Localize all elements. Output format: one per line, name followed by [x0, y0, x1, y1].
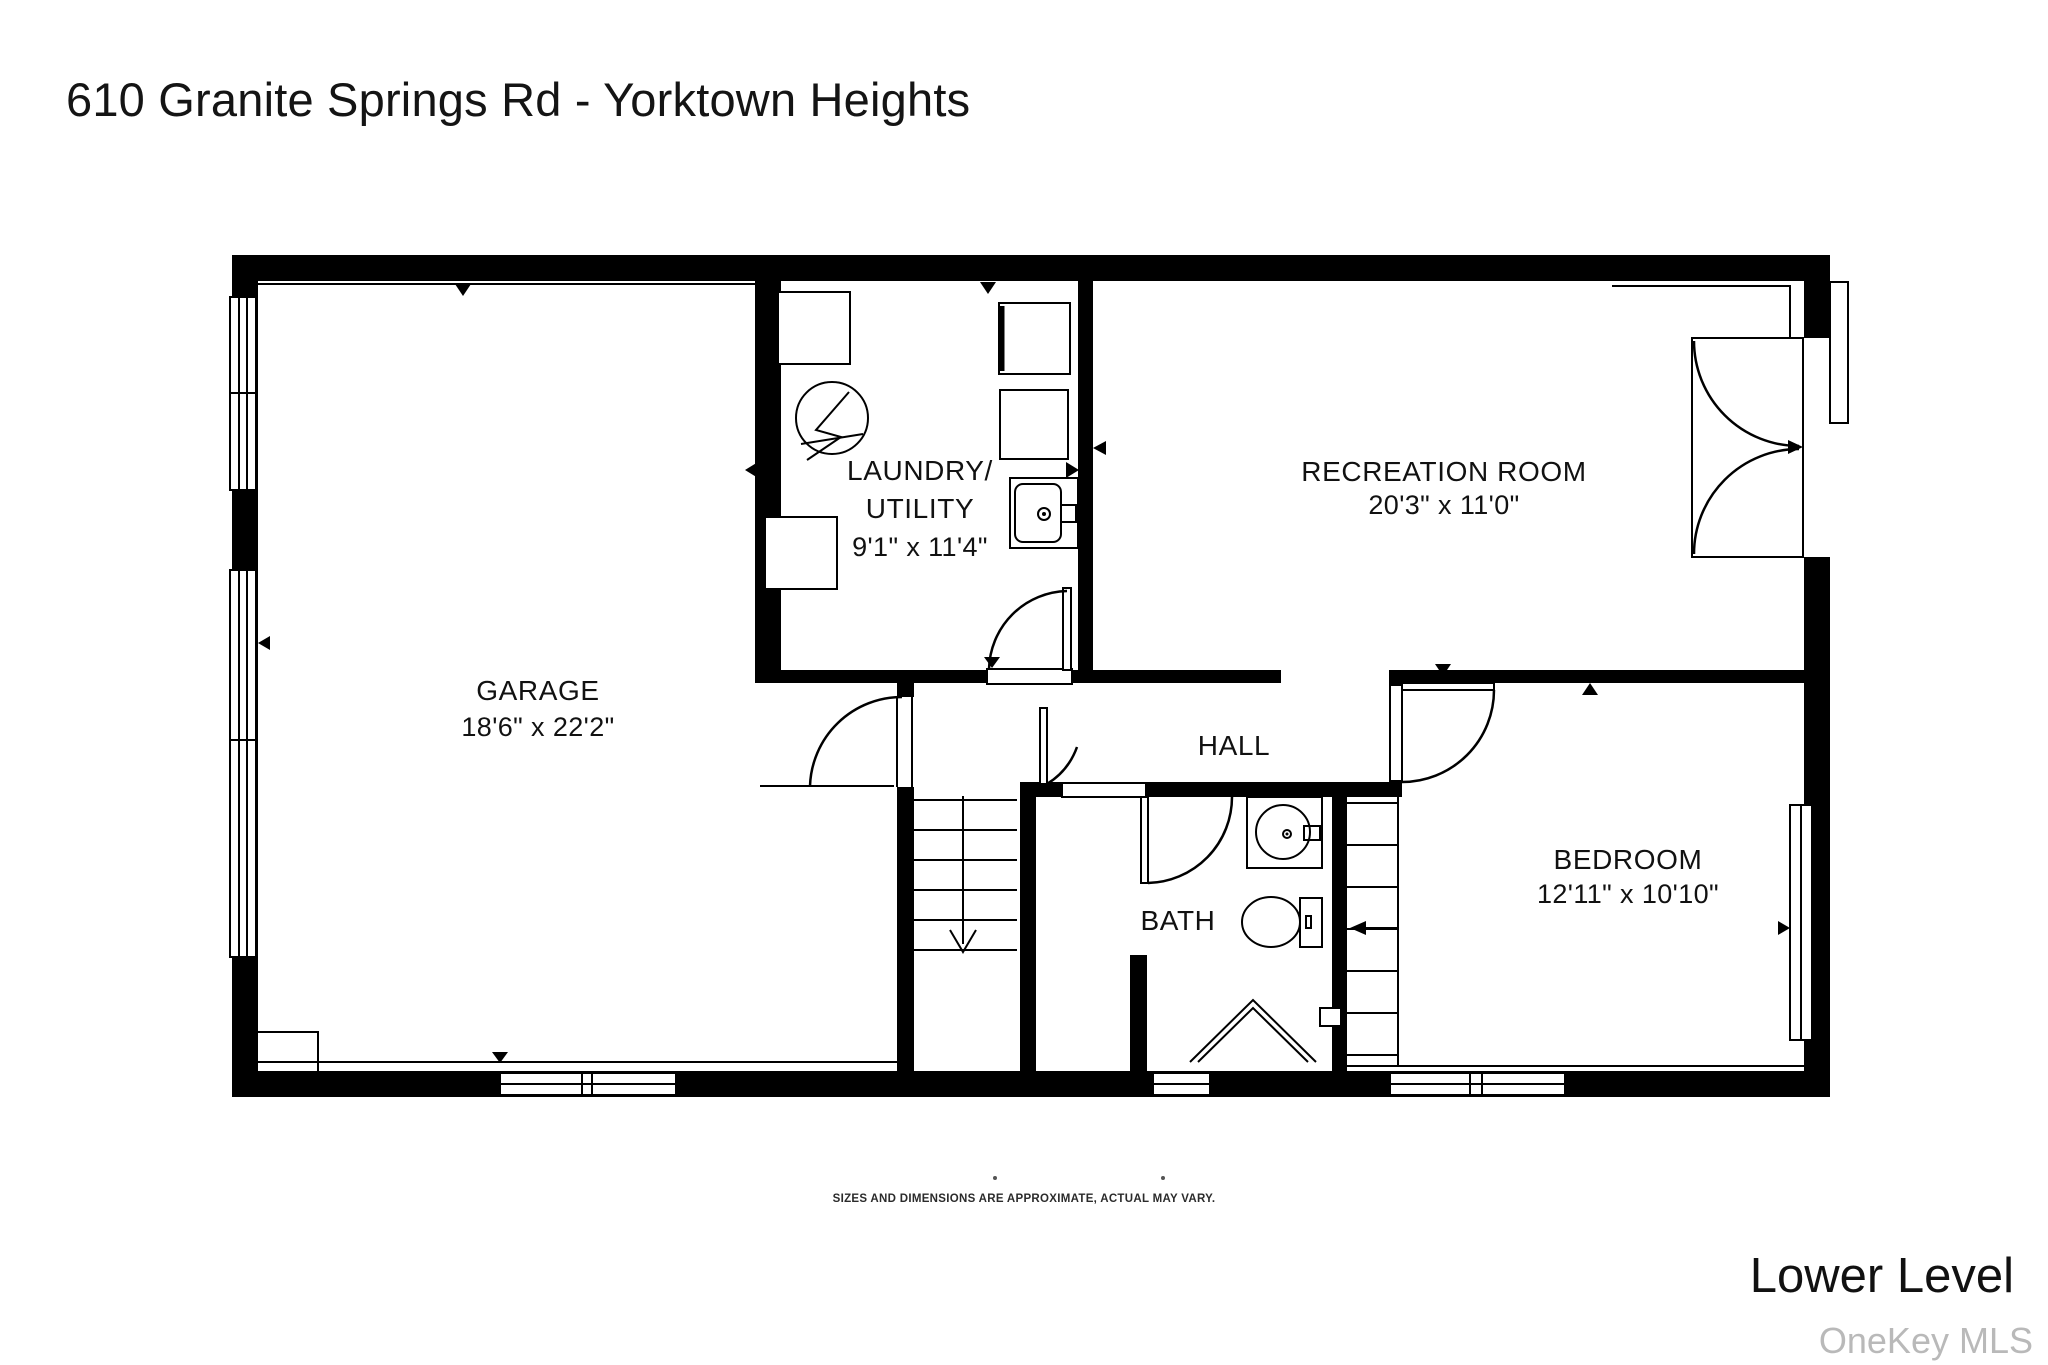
stairs-center: [914, 796, 1017, 952]
bath-wall-niche: [1320, 1008, 1341, 1026]
wall-bath-west: [1020, 782, 1036, 1071]
door-laundry-to-hall: [984, 588, 1072, 684]
window-garage-left-upper: [230, 297, 256, 490]
bath-sink: [1247, 797, 1322, 868]
wall-bedroom-north: [1389, 670, 1804, 683]
marker-laundry-top: [980, 282, 996, 294]
marker-garage-top: [455, 284, 471, 296]
door-bath: [1062, 783, 1232, 883]
appliance-dryer: [1000, 390, 1068, 459]
water-tank-symbol: [796, 382, 868, 460]
bath-shower: [1190, 1000, 1316, 1062]
disclaimer-text: SIZES AND DIMENSIONS ARE APPROXIMATE, AC…: [0, 1193, 2048, 1205]
wall-garage-east-lower: [897, 787, 914, 1071]
wall-laundry-recreation: [1078, 281, 1093, 683]
label-laundry-line1: LAUNDRY/: [847, 455, 993, 486]
door-swing-marker: [1788, 440, 1803, 454]
mls-watermark: OneKey MLS: [1819, 1320, 2033, 1362]
door-arc: [810, 697, 902, 786]
window-garage-bottom: [500, 1073, 676, 1095]
wall-bath-east: [1332, 797, 1347, 1071]
label-bedroom: BEDROOM: [1554, 844, 1703, 875]
label-laundry-dims: 9'1" x 11'4": [852, 532, 988, 562]
door-arc-upper: [1694, 341, 1799, 446]
door-arc: [1402, 690, 1494, 782]
door-garage-to-hall: [810, 697, 918, 787]
recreation-corner-line: [1612, 286, 1790, 338]
door-arc: [1148, 797, 1232, 883]
door-bedroom: [1390, 683, 1494, 782]
door-arc: [1047, 747, 1077, 784]
wall-laundry-south-b: [1072, 670, 1093, 683]
door-swing-marker: [984, 657, 1000, 668]
label-hall: HALL: [1198, 730, 1270, 761]
door-recreation-french: [1692, 338, 1803, 557]
marker-laundry-east: [1066, 462, 1079, 478]
floorplan-drawing: GARAGE 18'6" x 22'2" LAUNDRY/ UTILITY 9'…: [0, 0, 2048, 1365]
door-arc-lower: [1694, 449, 1799, 554]
appliance-washer: [999, 303, 1070, 374]
wall-hall-south-b: [1146, 782, 1402, 797]
laundry-sink: [1010, 478, 1078, 548]
wall-recreation-south: [1093, 670, 1281, 683]
appliance-freezer: [778, 292, 850, 364]
label-garage-dims: 18'6" x 22'2": [461, 712, 614, 742]
artifact-dot-left: [993, 1176, 997, 1180]
window-recreation-exterior: [1830, 282, 1848, 423]
marker-laundry-west: [745, 462, 758, 478]
window-bedroom-right: [1790, 805, 1812, 1040]
garage-corner-notch: [258, 1032, 318, 1071]
window-bath-bottom: [1153, 1073, 1210, 1095]
bath-toilet: [1242, 897, 1322, 947]
interior-walls: [755, 281, 1804, 1071]
stairs-right: [1347, 797, 1398, 1066]
door-arc: [989, 591, 1067, 669]
wall-laundry-south-a: [755, 670, 987, 683]
wall-shower-stub: [1130, 955, 1147, 1071]
appliance-utility-box: [765, 517, 837, 589]
window-garage-left-lower: [230, 570, 256, 957]
stairs-arrow-head: [1350, 921, 1366, 935]
label-recreation: RECREATION ROOM: [1301, 456, 1586, 487]
floor-level-label: Lower Level: [1750, 1248, 2014, 1304]
wall-exterior-right-upper: [1804, 255, 1830, 338]
label-laundry-line2: UTILITY: [866, 493, 974, 524]
wall-exterior-bottom: [232, 1071, 1830, 1097]
label-bedroom-dims: 12'11" x 10'10": [1537, 879, 1719, 909]
label-bath: BATH: [1141, 905, 1216, 936]
marker-garage-left: [258, 636, 270, 650]
artifact-dot-right: [1161, 1176, 1165, 1180]
wall-exterior-top: [232, 255, 1830, 281]
wall-garage-east-upper: [897, 683, 914, 697]
label-recreation-dims: 20'3" x 11'0": [1368, 490, 1519, 520]
marker-bedroom-east: [1778, 921, 1790, 935]
window-bedroom-bottom: [1390, 1073, 1565, 1095]
marker-bedroom-north-b: [1582, 683, 1598, 695]
floorplan-page: 610 Granite Springs Rd - Yorktown Height…: [0, 0, 2048, 1365]
door-hall-stair: [1040, 708, 1077, 784]
label-garage: GARAGE: [476, 675, 599, 706]
marker-recreation-west: [1093, 441, 1106, 455]
